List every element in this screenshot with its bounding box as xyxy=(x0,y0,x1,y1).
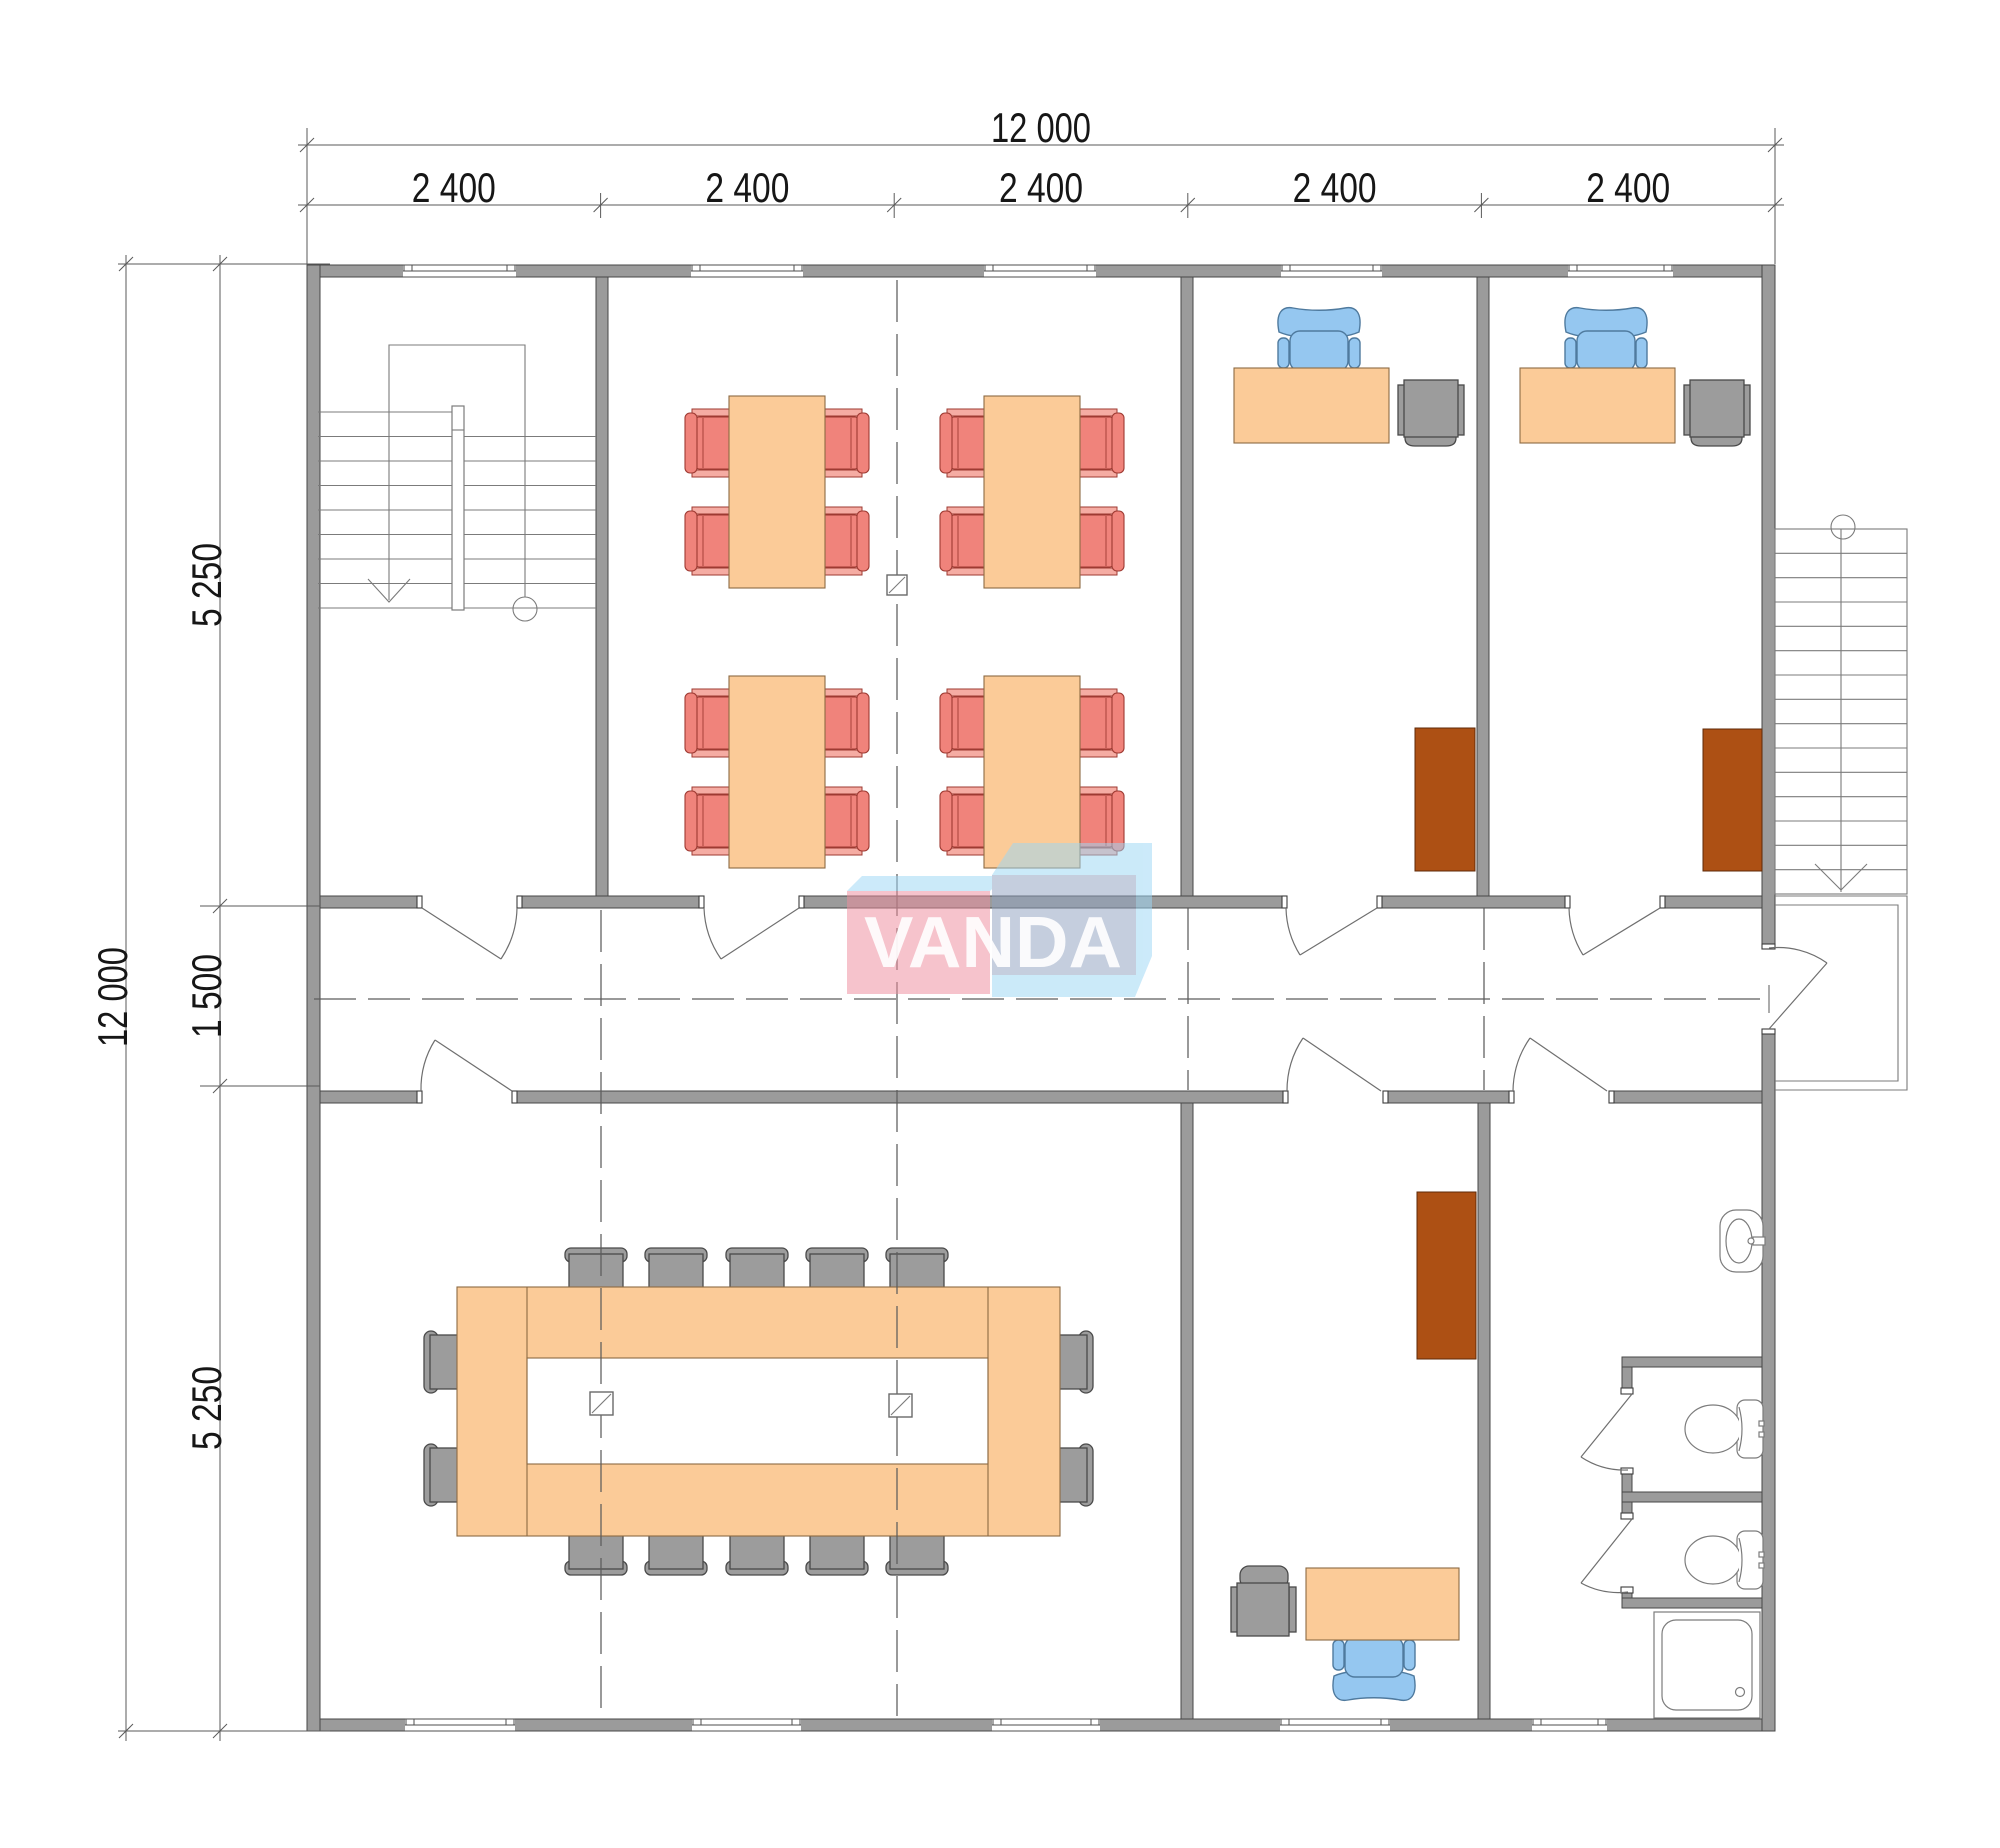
svg-text:2 400: 2 400 xyxy=(999,164,1083,211)
svg-text:2 400: 2 400 xyxy=(1293,164,1377,211)
svg-text:1 500: 1 500 xyxy=(183,954,230,1038)
svg-text:5 250: 5 250 xyxy=(183,1366,230,1450)
svg-text:2 400: 2 400 xyxy=(1586,164,1670,211)
svg-text:12 000: 12 000 xyxy=(89,947,136,1047)
svg-text:2 400: 2 400 xyxy=(412,164,496,211)
svg-text:2 400: 2 400 xyxy=(705,164,789,211)
svg-text:VANDA: VANDA xyxy=(864,903,1122,983)
svg-text:12 000: 12 000 xyxy=(991,104,1091,151)
svg-text:5 250: 5 250 xyxy=(183,543,230,627)
